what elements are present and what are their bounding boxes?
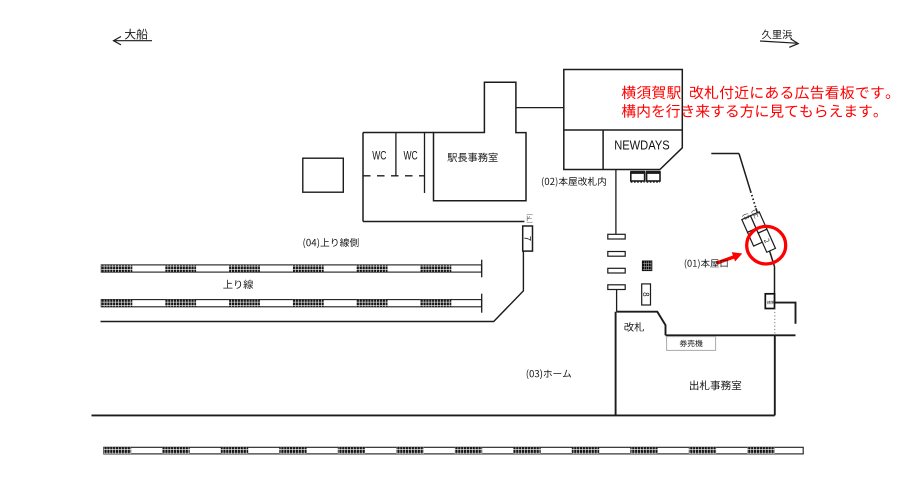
svg-text:WC: WC — [404, 148, 418, 162]
svg-text:NEWDAYS: NEWDAYS — [614, 137, 670, 152]
svg-text:WC: WC — [372, 148, 386, 162]
